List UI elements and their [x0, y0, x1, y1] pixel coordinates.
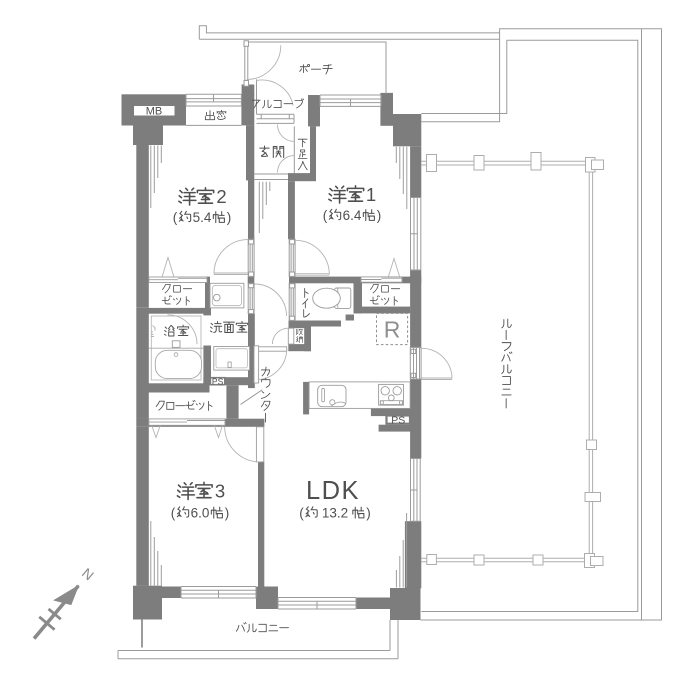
svg-text:(: (	[299, 506, 304, 521]
svg-text:(: (	[171, 506, 176, 521]
svg-text:): )	[227, 210, 232, 225]
svg-text:MB: MB	[146, 105, 163, 117]
svg-text:): )	[377, 208, 382, 223]
svg-text:LDK: LDK	[306, 477, 360, 505]
svg-text:5.4: 5.4	[193, 210, 212, 225]
svg-text:(: (	[323, 208, 328, 223]
svg-text:1: 1	[366, 184, 376, 205]
svg-text:): )	[366, 506, 371, 521]
svg-text:3: 3	[215, 481, 225, 502]
svg-text:6.4: 6.4	[343, 208, 362, 223]
svg-text:): )	[225, 506, 230, 521]
svg-text:PS: PS	[391, 414, 405, 426]
svg-text:2: 2	[216, 186, 226, 207]
svg-text:(: (	[173, 210, 178, 225]
svg-text:PS: PS	[212, 376, 224, 386]
svg-text:R: R	[384, 317, 401, 343]
svg-text:13.2: 13.2	[322, 506, 348, 521]
svg-text:6.0: 6.0	[191, 506, 210, 521]
